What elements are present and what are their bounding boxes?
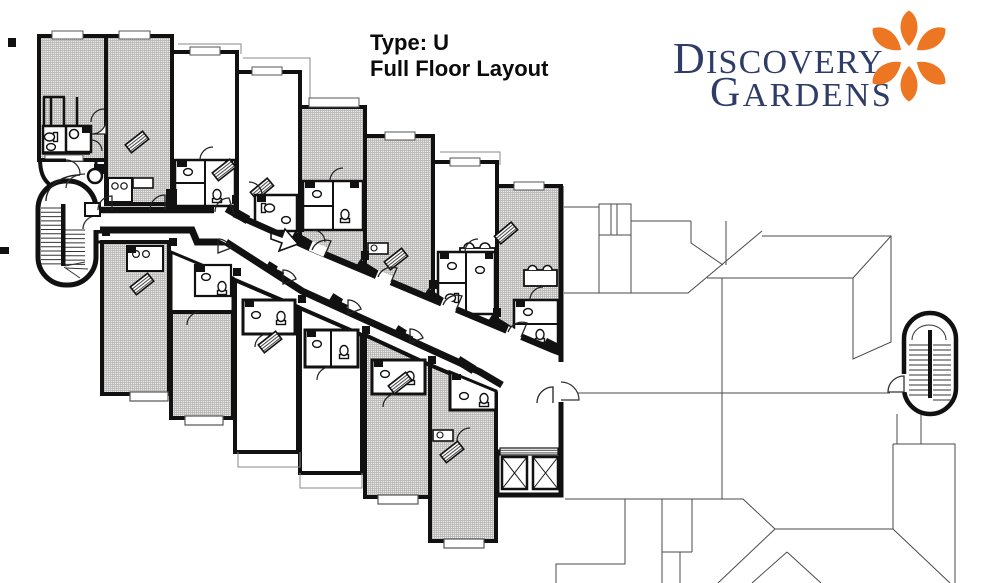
svg-text:Type: U: Type: U xyxy=(370,30,449,55)
svg-text:Full Floor Layout: Full Floor Layout xyxy=(370,56,549,81)
svg-text:GARDENS: GARDENS xyxy=(710,70,893,116)
